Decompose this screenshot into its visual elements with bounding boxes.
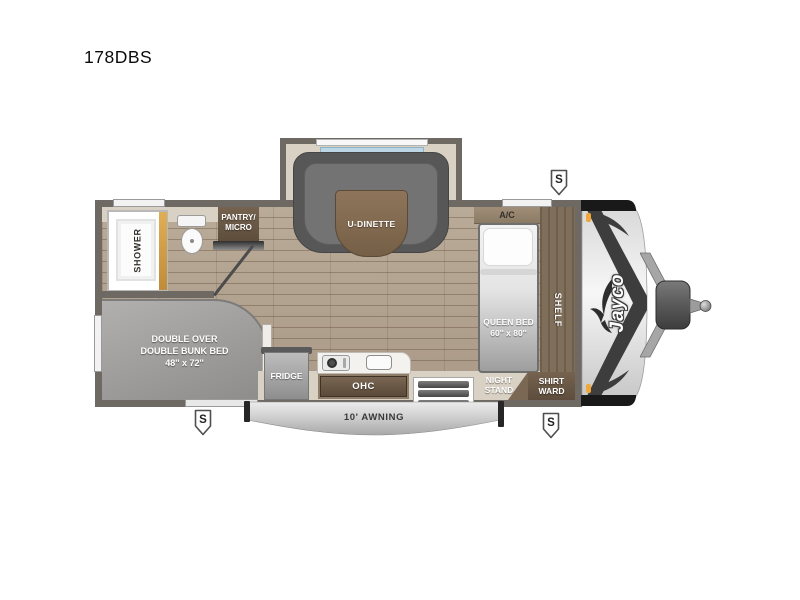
sink (366, 355, 392, 370)
floorplan-page: 178DBS SHOWER PANTRY/ MICRO DOUBLE OVER … (0, 0, 800, 600)
awning-end-cap (498, 401, 504, 427)
bunk-label-line3: 48'' x 72'' (107, 357, 262, 369)
jayco-logo: Jayco (607, 251, 629, 355)
shirt-wardrobe: SHIRT WARD (528, 372, 575, 400)
step-tread (418, 381, 469, 388)
shelf-label: SHELF (551, 280, 563, 340)
shower-label: SHOWER (133, 216, 146, 286)
front-cap-bottom-trim (581, 395, 636, 406)
hitch-ball (700, 301, 711, 312)
window-rear-side (94, 315, 102, 372)
awning-end-cap (244, 401, 250, 422)
queen-bed-label-line1: QUEEN BED (480, 317, 537, 328)
fridge-label: FRIDGE (270, 371, 302, 381)
step-tread (418, 390, 469, 397)
toilet-bowl (181, 228, 203, 254)
toilet-tank (177, 215, 206, 227)
pantry-counter-lip (213, 241, 264, 250)
stove-control (343, 358, 346, 368)
front-cap-top-trim (581, 200, 636, 211)
queen-bed: QUEEN BED 60'' x 80'' (478, 223, 539, 373)
night-stand-label-line1: NIGHT (476, 375, 522, 385)
stabilizer-jack-icon: S (542, 412, 560, 439)
pantry-label-line1: PANTRY/ (218, 213, 259, 223)
shirt-ward-label-line2: WARD (539, 386, 565, 396)
window-bedroom-top (502, 199, 552, 207)
dinette-table: U-DINETTE (335, 190, 408, 257)
queen-bed-label-line2: 60'' x 80'' (480, 328, 537, 339)
stabilizer-letter: S (555, 174, 563, 186)
shower-door (159, 212, 167, 290)
bed-blanket-fold (480, 269, 537, 275)
slideout-window-frame (316, 139, 428, 146)
ohc-label: OHC (352, 381, 375, 392)
ac-unit: A/C (474, 207, 540, 224)
hitch-assembly (640, 245, 715, 365)
pantry-micro-cabinet: PANTRY/ MICRO (218, 207, 259, 241)
window-rear-top (113, 199, 165, 207)
dinette-label: U-DINETTE (347, 219, 395, 229)
stove-burner (327, 358, 337, 368)
stabilizer-letter: S (547, 417, 555, 429)
propane-tank-cover (656, 281, 690, 329)
bathroom-wall (102, 291, 214, 298)
bunk-label-line2: DOUBLE BUNK BED (107, 345, 262, 357)
fridge: FRIDGE (264, 352, 309, 400)
bunk-label-line1: DOUBLE OVER (107, 333, 262, 345)
marker-light-icon (586, 213, 591, 222)
overhead-cabinet: OHC (318, 374, 409, 399)
stove (322, 355, 350, 371)
stabilizer-jack-icon: S (194, 409, 212, 436)
ac-label: A/C (499, 210, 515, 220)
pantry-label-line2: MICRO (218, 223, 259, 233)
jayco-wordmark: Jayco (607, 274, 629, 333)
shirt-ward-label-line1: SHIRT (539, 376, 565, 386)
awning-label: 10' AWNING (300, 412, 448, 423)
stabilizer-jack-icon: S (550, 169, 568, 196)
model-title: 178DBS (84, 47, 152, 68)
marker-light-icon (586, 384, 591, 393)
toilet-drain (190, 239, 194, 243)
stabilizer-letter: S (199, 414, 207, 426)
bed-pillow (483, 228, 533, 266)
